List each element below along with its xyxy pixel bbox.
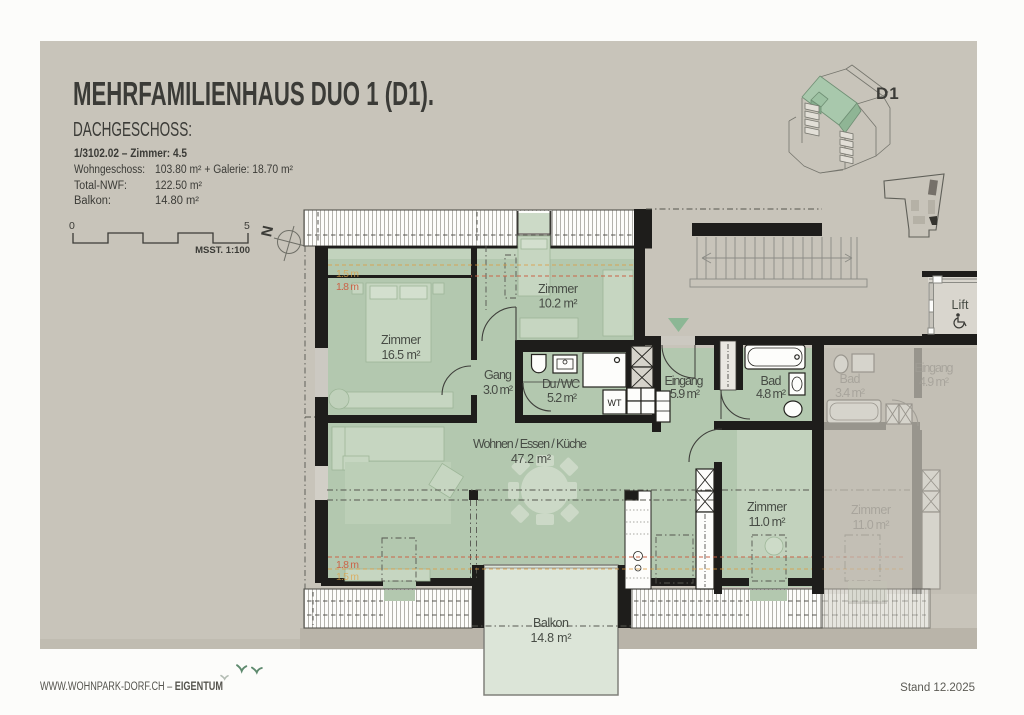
svg-text:5.9 m²: 5.9 m² — [670, 387, 700, 401]
svg-text:5: 5 — [244, 220, 250, 232]
svg-text:D1: D1 — [876, 84, 900, 103]
svg-text:WT: WT — [608, 398, 622, 408]
svg-text:Eingang: Eingang — [915, 361, 954, 375]
svg-text:Wohngeschoss:: Wohngeschoss: — [74, 164, 145, 176]
svg-text:14.80 m²: 14.80 m² — [155, 195, 199, 207]
svg-text:Zimmer: Zimmer — [851, 503, 891, 517]
svg-text:Eingang: Eingang — [665, 374, 704, 388]
svg-text:Zimmer: Zimmer — [747, 500, 787, 514]
svg-text:Zimmer: Zimmer — [538, 282, 578, 296]
svg-text:MSST. 1:100: MSST. 1:100 — [195, 245, 250, 256]
svg-text:1.5 m: 1.5 m — [336, 571, 359, 583]
svg-text:1.8 m: 1.8 m — [336, 559, 359, 571]
svg-text:103.80 m² + Galerie: 18.70 m²: 103.80 m² + Galerie: 18.70 m² — [155, 164, 293, 176]
svg-text:WWW.WOHNPARK-DORF.CH – EIGENTU: WWW.WOHNPARK-DORF.CH – EIGENTUM — [40, 681, 223, 693]
svg-text:Balkon: Balkon — [533, 616, 569, 630]
svg-text:Bad: Bad — [840, 372, 861, 386]
svg-text:4.8 m²: 4.8 m² — [756, 387, 786, 401]
svg-text:Gang: Gang — [484, 368, 512, 382]
svg-text:10.2 m²: 10.2 m² — [539, 297, 578, 311]
svg-text:14.8 m²: 14.8 m² — [531, 631, 572, 645]
svg-text:1.5 m: 1.5 m — [336, 268, 359, 280]
svg-text:0: 0 — [69, 220, 75, 232]
svg-text:16.5 m²: 16.5 m² — [382, 348, 421, 362]
svg-text:MEHRFAMILIENHAUS DUO 1 (D1).: MEHRFAMILIENHAUS DUO 1 (D1). — [73, 75, 434, 112]
svg-text:47.2 m²: 47.2 m² — [511, 452, 551, 466]
svg-text:Wohnen / Essen / Küche: Wohnen / Essen / Küche — [473, 437, 587, 451]
svg-text:3.4 m²: 3.4 m² — [835, 386, 865, 400]
svg-text:Total-NWF:: Total-NWF: — [74, 180, 127, 192]
svg-text:1/3102.02 – Zimmer: 4.5: 1/3102.02 – Zimmer: 4.5 — [74, 148, 188, 160]
svg-text:1.8 m: 1.8 m — [336, 281, 359, 293]
svg-text:11.0 m²: 11.0 m² — [853, 518, 890, 532]
svg-text:Zimmer: Zimmer — [381, 333, 421, 347]
svg-text:5.2 m²: 5.2 m² — [547, 391, 577, 405]
svg-text:122.50 m²: 122.50 m² — [155, 180, 202, 192]
svg-text:Bad: Bad — [761, 374, 782, 388]
svg-text:Balkon:: Balkon: — [74, 195, 111, 207]
svg-text:3.0 m²: 3.0 m² — [483, 383, 513, 397]
svg-text:Lift: Lift — [952, 298, 970, 312]
svg-text:4.9 m²: 4.9 m² — [919, 375, 949, 389]
svg-text:Stand 12.2025: Stand 12.2025 — [900, 682, 975, 694]
svg-text:DACHGESCHOSS:: DACHGESCHOSS: — [73, 119, 192, 141]
svg-text:11.0 m²: 11.0 m² — [749, 515, 786, 529]
svg-text:Du / WC: Du / WC — [542, 377, 580, 391]
